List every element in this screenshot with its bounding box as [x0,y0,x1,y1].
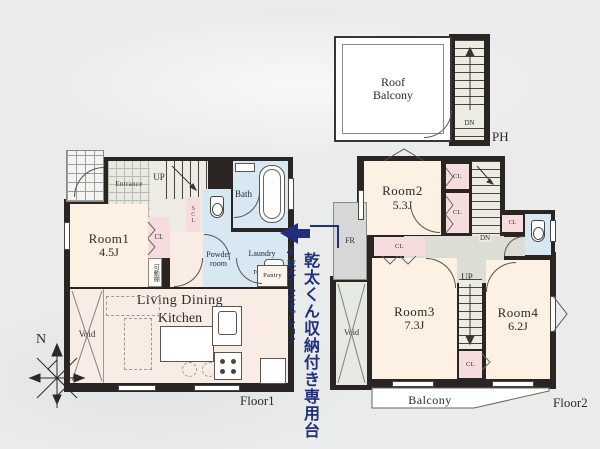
refrigerator-icon [260,358,286,384]
floor-plan-canvas: Roof Balcony DN PH Entrance UP SCL Bath … [0,0,600,449]
toilet-icon [210,196,224,218]
void-2f: Void [336,282,367,385]
dining-table [124,318,152,370]
pantry-label: Pantry [263,272,282,279]
kitchen-island [160,326,214,362]
compass-north-label: N [36,332,46,347]
bathtub-icon [259,165,285,223]
dining-table [106,296,160,316]
closet-label: CL [466,361,475,368]
closet-label: CL [155,234,164,242]
window [118,385,156,391]
stairs-up-label: UP [461,272,473,282]
annotation-note: ※乾太くんはオプション [286,249,295,359]
sink-icon [218,311,237,335]
stairs-dn-label: DN [479,234,491,242]
window [550,296,556,332]
shoe-closet-label: SCL [190,206,197,224]
movable-shelf-label: 可動棚 [152,264,159,282]
balcony-label: Balcony [408,393,452,407]
stove-icon [214,352,242,380]
closet-label: CL [453,173,462,180]
room3-size: 7.3J [405,319,425,332]
sink-counter [212,306,242,346]
window [358,190,364,220]
void-label: Void [344,329,359,338]
room1-label: Room1 [89,232,130,246]
roof-balcony-label: Balcony [373,89,413,102]
ldk-label: Kitchen [158,311,202,326]
stairs-up-2f [459,279,482,349]
floor2-label: Floor2 [553,396,599,410]
bath-vanity-icon [235,163,255,172]
toilet-icon [531,220,545,242]
floor1-label: Floor1 [240,394,300,408]
stool-icon [182,362,197,377]
room1-size: 4.5J [99,246,119,259]
laundry-room-label: Laundry [248,249,275,258]
void-label: Void [79,330,96,340]
closet-label: CL [509,220,517,227]
room2-label: Room2 [382,184,423,198]
window [288,178,294,210]
window [64,222,70,250]
room3-label: Room3 [394,305,435,319]
window [550,220,556,242]
powder-room-label: room [210,260,227,269]
entrance-label: Entrance [115,181,142,189]
window [492,381,534,387]
room4-size: 6.2J [508,320,528,333]
stairs-dn-label: DN [464,119,474,127]
stairs-dn-2f [472,161,500,236]
closet-label: CL [395,243,404,250]
penthouse-label: PH [492,130,509,144]
room1: Room1 4.5J [70,204,148,287]
window [194,385,240,391]
window [392,381,434,387]
closet-label: CL [453,209,462,216]
fr-label: FR [345,237,355,246]
room4-label: Room4 [498,306,539,320]
annotation-headline: 乾太くん収納付き専用台 [302,252,318,448]
stairs-up-label: UP [153,172,165,182]
